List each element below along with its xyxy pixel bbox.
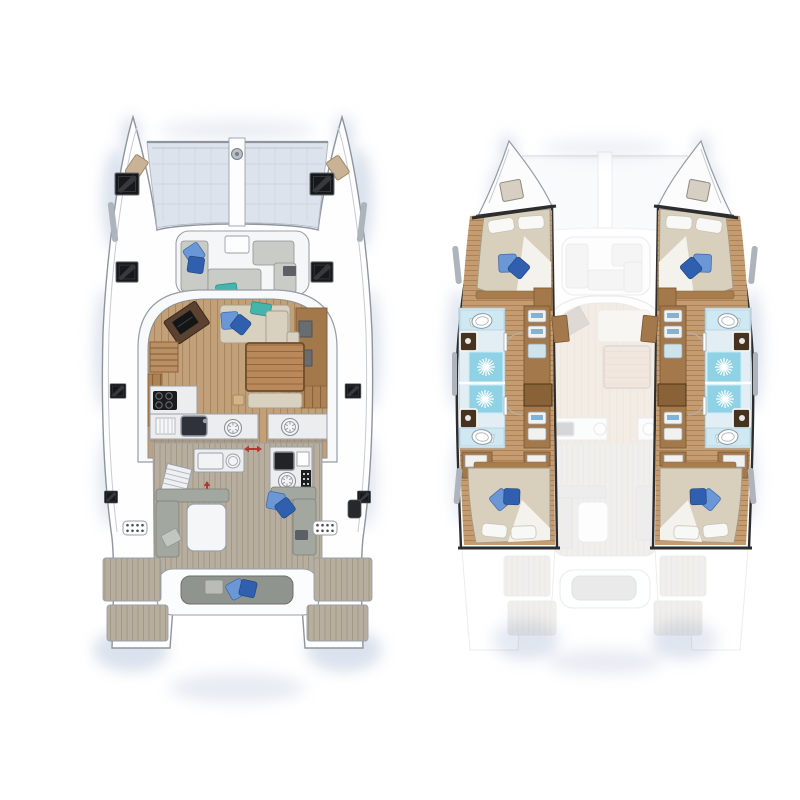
galley-stove (153, 391, 177, 410)
salon-table (246, 343, 304, 391)
grill-module (270, 447, 312, 493)
bar-sink (198, 453, 223, 469)
stool (233, 395, 244, 405)
deck-hatch (345, 384, 361, 399)
round-vent (282, 419, 299, 436)
transom-step (107, 605, 168, 641)
deck-hatch (311, 262, 333, 282)
sofa-bench (248, 393, 302, 408)
speaker-panel (299, 321, 312, 337)
hull-plan-view (452, 141, 758, 650)
deck-hatch (104, 491, 117, 503)
deck-hatch (115, 173, 139, 195)
floorplan-canvas (0, 0, 800, 800)
catamaran-floorplan (0, 0, 800, 800)
bench-cushion (253, 241, 294, 265)
side-vent-grid (313, 521, 337, 535)
cocktail-table (283, 266, 296, 276)
deck-hatch (310, 173, 334, 195)
galley-sink (181, 416, 207, 436)
side-table (295, 530, 308, 540)
side-vent-grid (123, 521, 147, 535)
faucet (203, 419, 207, 423)
transom-step (307, 605, 368, 641)
cockpit-table (187, 504, 226, 551)
grill (274, 452, 294, 470)
wet-bar (194, 449, 244, 472)
forward-cockpit (176, 231, 309, 297)
drainboard (156, 418, 175, 434)
aft-bench (157, 569, 319, 615)
companionway-stairs-port (150, 342, 178, 372)
round-vent (225, 420, 242, 437)
deck-plan-view (102, 117, 372, 648)
transom-step (103, 558, 161, 601)
foredeck-hatch (225, 236, 249, 253)
deck-hatch (116, 262, 138, 282)
side-panel (348, 500, 361, 518)
transom-step (314, 558, 372, 601)
bench-table (205, 580, 223, 594)
deck-hatch (110, 384, 126, 399)
